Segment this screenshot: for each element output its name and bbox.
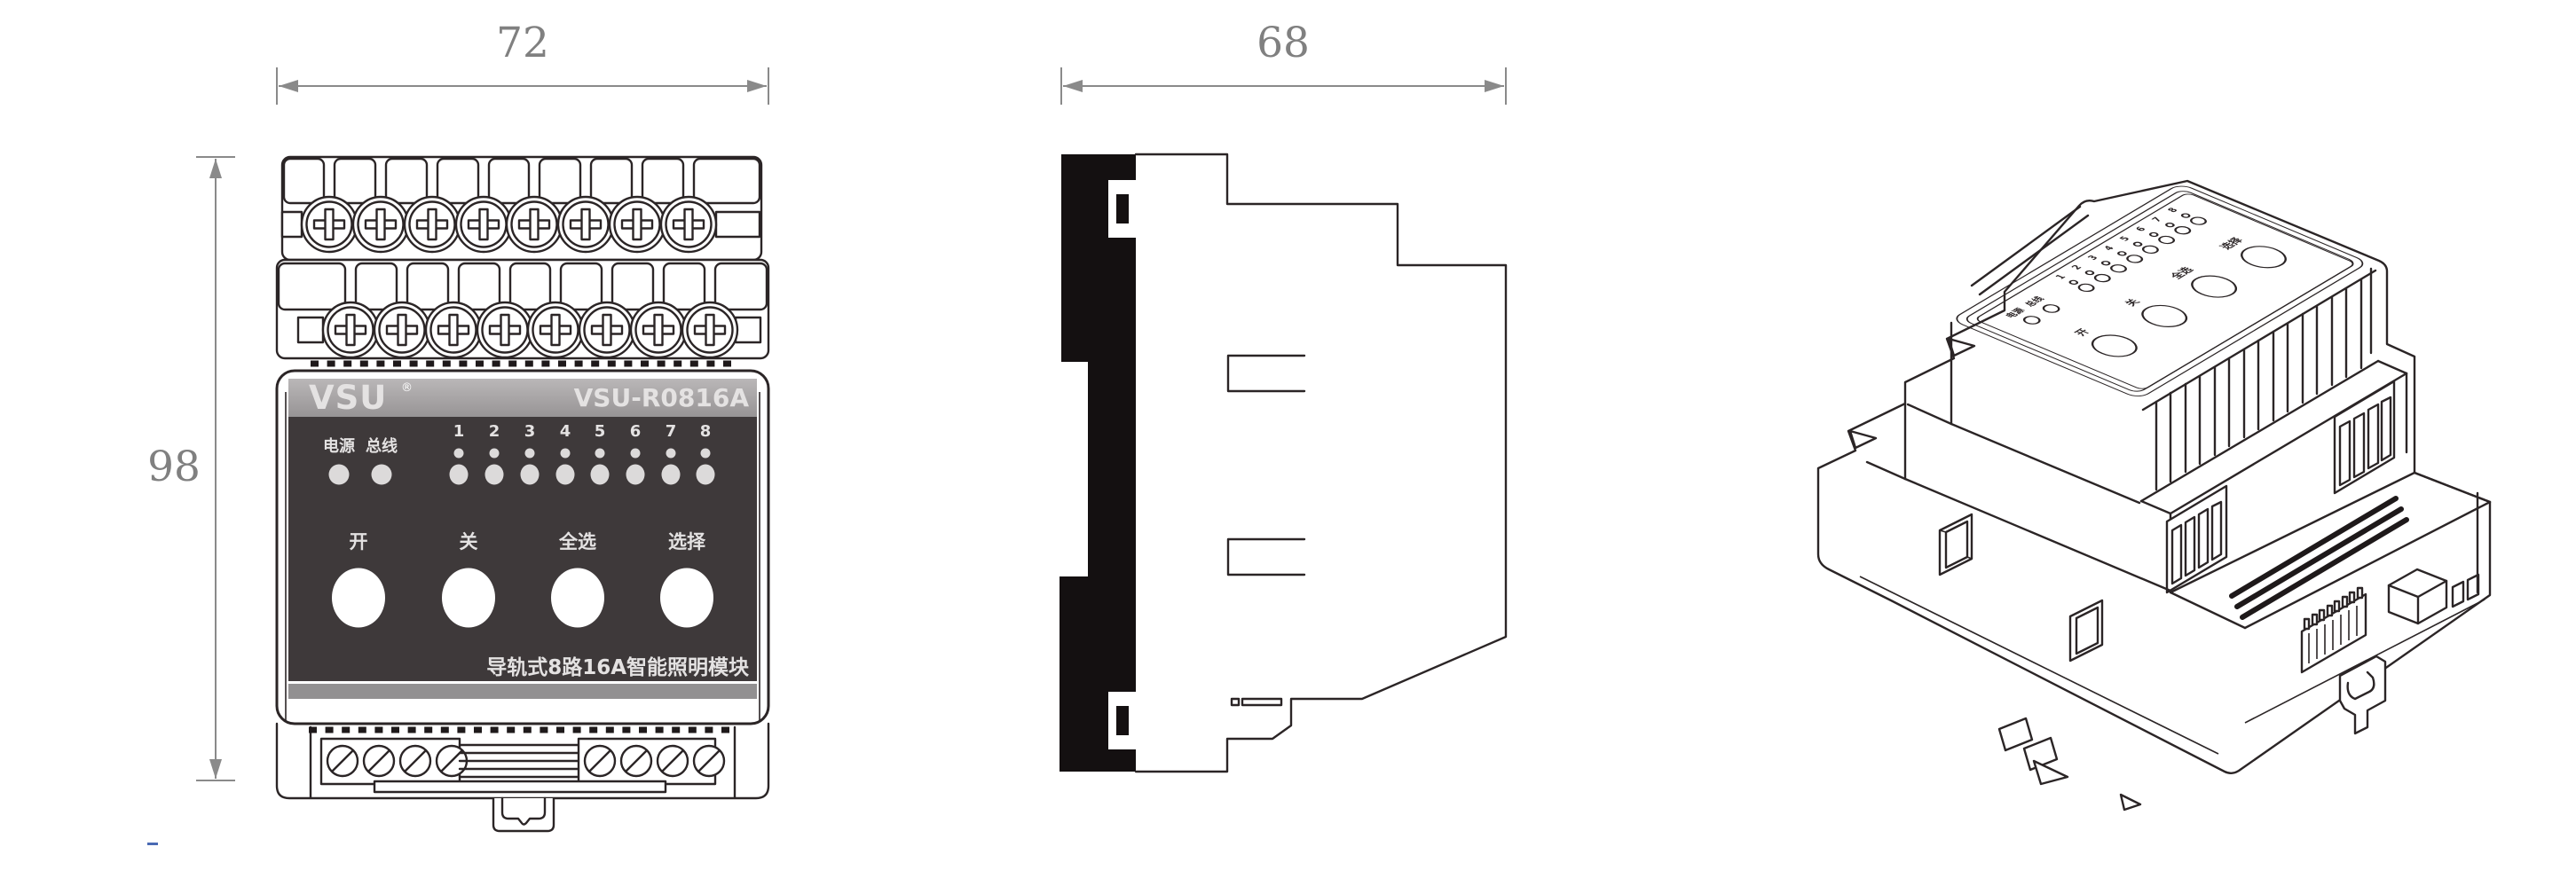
on-button bbox=[332, 568, 385, 628]
blue-artifact-dash bbox=[147, 843, 158, 845]
model-number: VSU-R0816A bbox=[574, 383, 750, 412]
din-slide-bar bbox=[374, 781, 666, 792]
side-body-outline bbox=[1136, 154, 1506, 772]
side-depth-value: 68 bbox=[1256, 19, 1310, 67]
front-bottom-section bbox=[277, 724, 768, 831]
front-terminal-row-2 bbox=[277, 260, 768, 358]
side-clip-upper bbox=[1228, 356, 1304, 391]
brand-logo: VSU bbox=[309, 379, 387, 417]
iso-base-hook bbox=[2034, 761, 2068, 784]
side-view: 68 bbox=[1060, 19, 1506, 772]
select-all-button-label: 全选 bbox=[558, 531, 596, 553]
front-din-clip bbox=[493, 798, 554, 831]
front-panel-bottom-strip bbox=[288, 684, 757, 699]
svg-text:2: 2 bbox=[489, 422, 500, 441]
technical-drawing-canvas: 72 98 bbox=[0, 0, 2576, 886]
select-button bbox=[660, 568, 713, 628]
bus-led-label: 总线 bbox=[366, 436, 398, 456]
front-width-value: 72 bbox=[496, 19, 549, 67]
off-button-label: 关 bbox=[460, 531, 478, 553]
side-front-profile-black bbox=[1060, 154, 1136, 772]
iso-silhouette bbox=[1818, 181, 2490, 773]
screw bbox=[302, 197, 357, 252]
bus-led bbox=[372, 465, 392, 485]
front-main-body: VSU ® VSU-R0816A 电源 总线 1 2 3 4 5 6 7 8 bbox=[277, 371, 768, 724]
svg-text:1: 1 bbox=[453, 422, 465, 441]
svg-text:8: 8 bbox=[700, 422, 712, 441]
brand-registered-mark: ® bbox=[401, 381, 413, 395]
front-terminal-row-1 bbox=[282, 157, 761, 260]
svg-text:7: 7 bbox=[666, 422, 677, 441]
product-caption: 导轨式8路16A智能照明模块 bbox=[486, 655, 749, 679]
svg-text:6: 6 bbox=[630, 422, 642, 441]
iso-tab-1 bbox=[1999, 718, 2032, 750]
front-height-value: 98 bbox=[147, 443, 201, 491]
front-width-dimension: 72 bbox=[277, 19, 768, 105]
svg-text:3: 3 bbox=[524, 422, 536, 441]
side-clip-lower bbox=[1228, 539, 1304, 575]
power-led-label: 电源 bbox=[323, 436, 355, 456]
select-all-button bbox=[551, 568, 604, 628]
front-view: 72 98 bbox=[147, 19, 768, 845]
off-button bbox=[442, 568, 495, 628]
front-height-dimension: 98 bbox=[147, 157, 235, 780]
side-depth-dimension: 68 bbox=[1061, 19, 1506, 105]
svg-text:4: 4 bbox=[560, 422, 571, 441]
svg-text:5: 5 bbox=[595, 422, 606, 441]
isometric-view: 电源 总线 1 2 3 4 5 6 7 8 bbox=[1818, 181, 2490, 810]
power-led bbox=[329, 465, 350, 485]
on-button-label: 开 bbox=[350, 531, 368, 553]
select-button-label: 选择 bbox=[668, 531, 706, 553]
